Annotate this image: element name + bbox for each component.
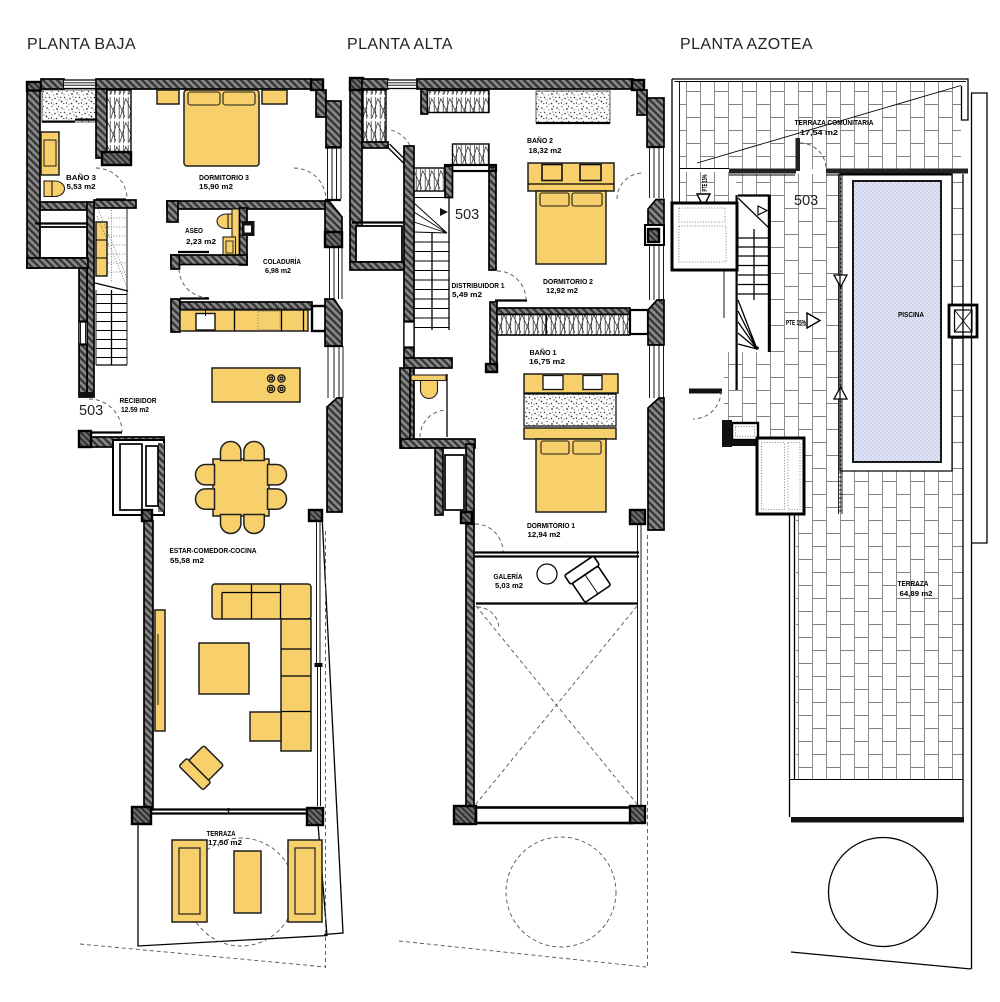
- svg-text:PLANTA BAJA: PLANTA BAJA: [27, 36, 136, 53]
- svg-text:PLANTA AZOTEA: PLANTA AZOTEA: [680, 36, 813, 53]
- svg-text:PLANTA ALTA: PLANTA ALTA: [347, 36, 453, 53]
- svg-text:503: 503: [455, 207, 479, 223]
- svg-text:BAÑO 2: BAÑO 2: [527, 136, 553, 145]
- svg-text:6,98 m2: 6,98 m2: [265, 266, 291, 275]
- svg-text:ASEO: ASEO: [185, 226, 203, 235]
- svg-text:503: 503: [79, 403, 103, 419]
- svg-text:DISTRIBUIDOR 1: DISTRIBUIDOR 1: [452, 281, 505, 290]
- svg-text:RECIBIDOR: RECIBIDOR: [120, 396, 158, 405]
- svg-text:503: 503: [794, 193, 818, 209]
- svg-text:TERRAZA COMUNITARIA: TERRAZA COMUNITARIA: [795, 118, 874, 127]
- svg-text:17,50 m2: 17,50 m2: [208, 838, 242, 847]
- svg-text:TERRAZA: TERRAZA: [898, 579, 929, 588]
- svg-text:ESTAR-COMEDOR-COCINA: ESTAR-COMEDOR-COCINA: [170, 546, 257, 555]
- svg-text:DORMITORIO 1: DORMITORIO 1: [527, 521, 575, 530]
- svg-text:5,03 m2: 5,03 m2: [495, 581, 523, 590]
- svg-text:18,32 m2: 18,32 m2: [529, 146, 562, 155]
- svg-text:DORMITORIO 3: DORMITORIO 3: [199, 173, 249, 182]
- svg-text:BAÑO 1: BAÑO 1: [530, 348, 557, 357]
- svg-text:2,23 m2: 2,23 m2: [186, 237, 216, 246]
- svg-text:PTE 15%: PTE 15%: [700, 174, 709, 191]
- svg-text:64,89 m2: 64,89 m2: [900, 589, 933, 598]
- svg-text:12,94 m2: 12,94 m2: [528, 530, 561, 539]
- svg-text:BAÑO 3: BAÑO 3: [66, 173, 96, 182]
- svg-text:TERRAZA: TERRAZA: [207, 829, 236, 838]
- svg-text:GALERÍA: GALERÍA: [494, 572, 523, 581]
- svg-text:12,92 m2: 12,92 m2: [546, 286, 578, 295]
- svg-text:5,53 m2: 5,53 m2: [67, 182, 96, 191]
- svg-text:DORMITORIO 2: DORMITORIO 2: [543, 277, 593, 286]
- svg-text:5,49 m2: 5,49 m2: [452, 290, 482, 299]
- svg-text:COLADURÍA: COLADURÍA: [263, 257, 301, 266]
- svg-text:17,54 m2: 17,54 m2: [800, 128, 838, 137]
- svg-text:16,75 m2: 16,75 m2: [529, 357, 565, 366]
- svg-text:12.59 m2: 12.59 m2: [121, 405, 149, 414]
- svg-text:55,58 m2: 55,58 m2: [170, 556, 204, 565]
- svg-text:PISCINA: PISCINA: [898, 310, 924, 319]
- svg-text:15,90 m2: 15,90 m2: [199, 182, 233, 191]
- svg-text:PTE 15%: PTE 15%: [786, 318, 806, 327]
